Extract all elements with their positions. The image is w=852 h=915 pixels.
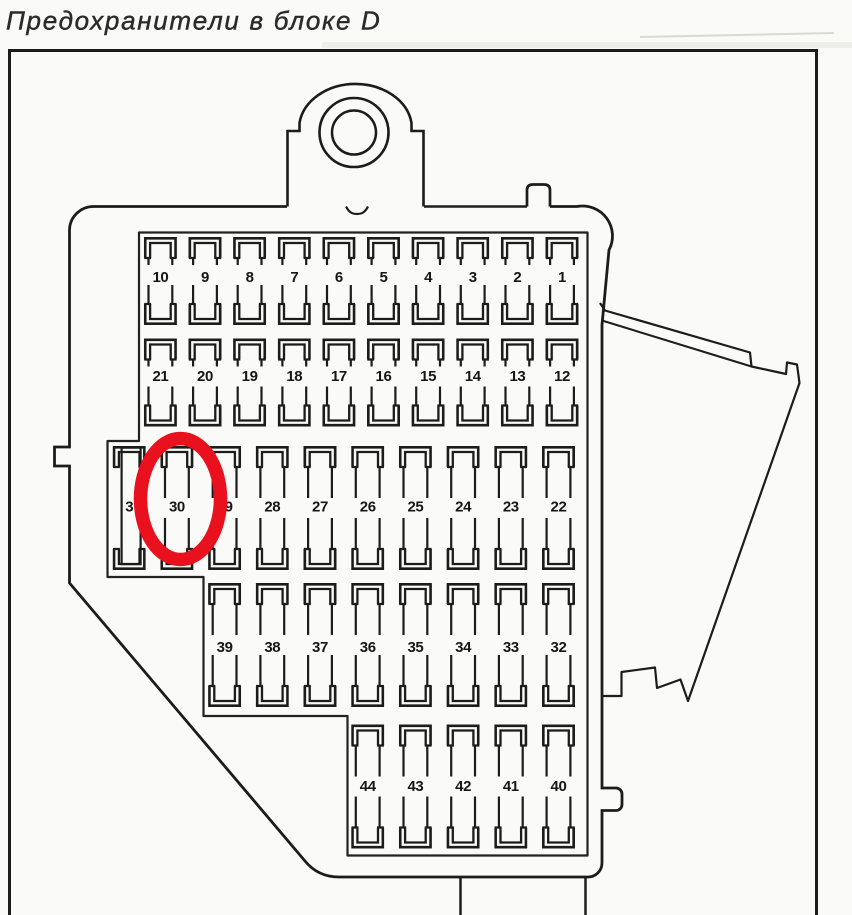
svg-text:23: 23: [503, 498, 519, 515]
svg-text:5: 5: [380, 269, 388, 286]
svg-text:16: 16: [376, 368, 392, 385]
svg-text:28: 28: [264, 498, 280, 515]
svg-text:40: 40: [551, 778, 567, 795]
svg-text:14: 14: [465, 368, 482, 385]
svg-text:8: 8: [246, 269, 254, 286]
svg-text:42: 42: [455, 778, 471, 795]
svg-text:10: 10: [152, 269, 168, 286]
svg-text:15: 15: [420, 368, 436, 385]
svg-text:22: 22: [551, 498, 567, 515]
svg-text:25: 25: [407, 498, 423, 515]
svg-text:20: 20: [197, 368, 213, 385]
svg-text:2: 2: [513, 269, 521, 286]
svg-text:12: 12: [554, 368, 570, 385]
svg-text:21: 21: [152, 368, 168, 385]
svg-text:35: 35: [407, 639, 423, 656]
svg-text:41: 41: [503, 778, 519, 795]
svg-text:18: 18: [286, 368, 302, 385]
svg-text:3: 3: [125, 498, 133, 515]
svg-text:6: 6: [335, 269, 343, 286]
svg-text:34: 34: [455, 639, 472, 656]
svg-text:19: 19: [242, 368, 258, 385]
svg-text:7: 7: [290, 269, 298, 286]
svg-text:33: 33: [503, 639, 519, 656]
svg-text:44: 44: [360, 778, 377, 795]
svg-text:32: 32: [551, 639, 567, 656]
svg-text:27: 27: [312, 498, 328, 515]
svg-text:4: 4: [424, 269, 433, 286]
svg-text:1: 1: [558, 269, 566, 286]
svg-text:9: 9: [201, 269, 209, 286]
svg-text:38: 38: [264, 639, 280, 656]
svg-text:13: 13: [509, 368, 525, 385]
svg-text:43: 43: [407, 778, 423, 795]
svg-text:3: 3: [469, 269, 477, 286]
svg-text:39: 39: [217, 639, 233, 656]
svg-text:30: 30: [169, 498, 185, 515]
svg-text:Предохранители в блоке D: Предохранители в блоке D: [6, 6, 382, 36]
svg-text:26: 26: [360, 498, 376, 515]
svg-text:17: 17: [331, 368, 347, 385]
svg-text:36: 36: [360, 639, 376, 656]
svg-text:24: 24: [455, 498, 472, 515]
svg-text:37: 37: [312, 639, 328, 656]
